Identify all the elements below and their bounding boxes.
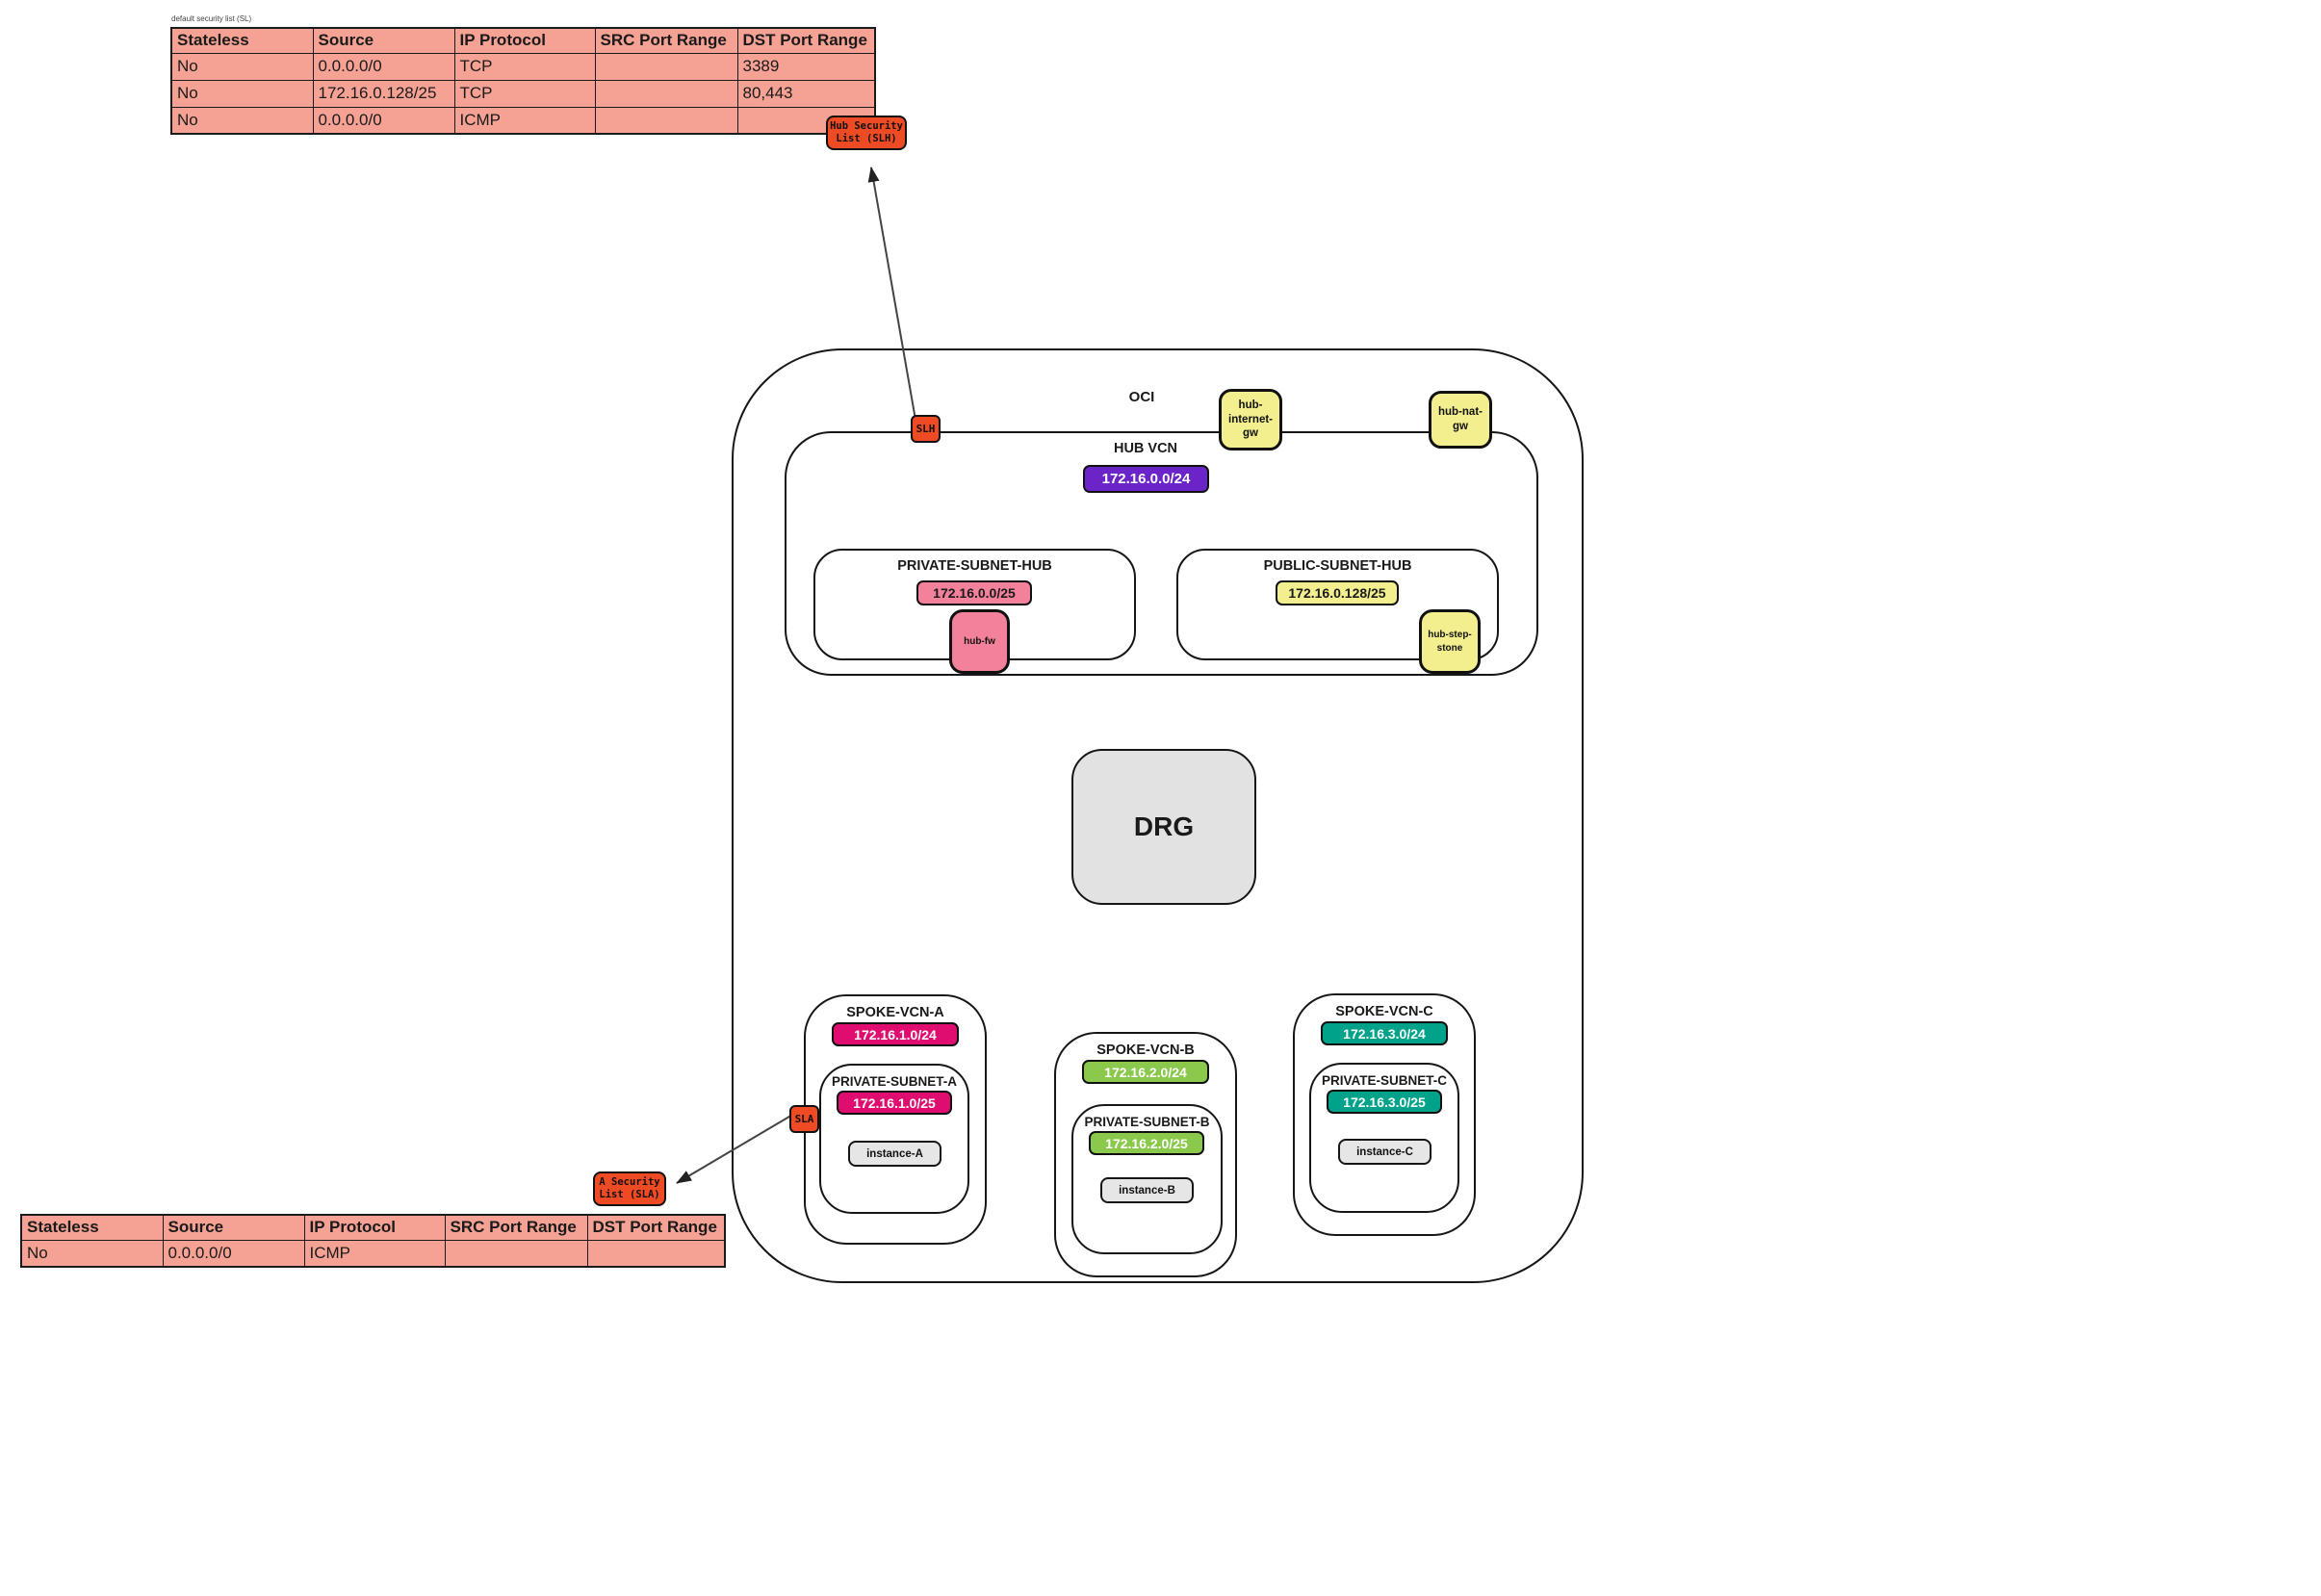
spoke-th-src-port: SRC Port Range <box>445 1215 587 1240</box>
instance-c-node: instance-C <box>1338 1139 1431 1165</box>
cell: 80,443 <box>737 80 875 107</box>
cell: 0.0.0.0/0 <box>163 1240 304 1267</box>
instance-label: instance-C <box>1356 1146 1413 1158</box>
hub-table-caption: default security list (SL) <box>171 14 251 23</box>
private-subnet-b-label: PRIVATE-SUBNET-B <box>1071 1115 1223 1129</box>
private-subnet-hub-cidr-badge: 172.16.0.0/25 <box>916 580 1032 605</box>
spoke-vcn-c-label: SPOKE-VCN-C <box>1293 1004 1476 1019</box>
spoke-vcn-b-cidr-badge: 172.16.2.0/24 <box>1082 1060 1209 1084</box>
hub-th-src-port: SRC Port Range <box>595 28 737 53</box>
public-subnet-hub-label: PUBLIC-SUBNET-HUB <box>1176 558 1499 574</box>
spoke-th-ip-protocol: IP Protocol <box>304 1215 445 1240</box>
cell <box>595 107 737 134</box>
spoke-vcn-c-cidr-badge: 172.16.3.0/24 <box>1321 1021 1448 1045</box>
diagram-canvas: default security list (SL) Stateless Sou… <box>0 0 2321 1596</box>
callout-line: List (SLH) <box>836 133 896 145</box>
node-label: stone <box>1437 642 1463 656</box>
cell: 172.16.0.128/25 <box>313 80 454 107</box>
private-subnet-hub-label: PRIVATE-SUBNET-HUB <box>813 558 1136 574</box>
hub-th-source: Source <box>313 28 454 53</box>
callout-line: A Security <box>599 1176 659 1189</box>
private-subnet-c-label: PRIVATE-SUBNET-C <box>1309 1073 1459 1088</box>
callout-line: List (SLA) <box>599 1189 659 1201</box>
spoke-vcn-a-label: SPOKE-VCN-A <box>804 1005 987 1020</box>
spoke-vcn-b-label: SPOKE-VCN-B <box>1054 1043 1237 1058</box>
hub-vcn-label: HUB VCN <box>1069 441 1223 456</box>
gw-line: gw <box>1243 426 1258 441</box>
hub-security-list-table: Stateless Source IP Protocol SRC Port Ra… <box>170 27 876 135</box>
sla-marker: SLA <box>789 1105 819 1133</box>
slh-marker: SLH <box>911 415 941 443</box>
spoke-th-stateless: Stateless <box>21 1215 163 1240</box>
private-subnet-a-label: PRIVATE-SUBNET-A <box>819 1074 969 1089</box>
cell: 0.0.0.0/0 <box>313 53 454 80</box>
node-label: hub-step- <box>1428 629 1472 642</box>
cell: ICMP <box>454 107 595 134</box>
private-subnet-c-cidr-badge: 172.16.3.0/25 <box>1327 1090 1442 1114</box>
callout-line: Hub Security <box>830 120 903 133</box>
cell: TCP <box>454 53 595 80</box>
cell: 0.0.0.0/0 <box>313 107 454 134</box>
hub-th-dst-port: DST Port Range <box>737 28 875 53</box>
public-subnet-hub-cidr-badge: 172.16.0.128/25 <box>1276 580 1399 605</box>
gw-line: gw <box>1453 420 1468 434</box>
private-subnet-b-cidr-badge: 172.16.2.0/25 <box>1089 1131 1204 1155</box>
cell <box>595 53 737 80</box>
spoke-security-list-table: Stateless Source IP Protocol SRC Port Ra… <box>20 1214 726 1268</box>
instance-label: instance-B <box>1119 1185 1175 1197</box>
hub-table-header-row: Stateless Source IP Protocol SRC Port Ra… <box>171 28 875 53</box>
cell: No <box>171 53 313 80</box>
drg-label: DRG <box>1134 811 1194 842</box>
hub-th-stateless: Stateless <box>171 28 313 53</box>
private-subnet-a-cidr-badge: 172.16.1.0/25 <box>837 1091 952 1115</box>
spoke-th-source: Source <box>163 1215 304 1240</box>
oci-label: OCI <box>1103 389 1180 405</box>
hub-security-list-callout: Hub Security List (SLH) <box>826 116 907 150</box>
table-row: No 0.0.0.0/0 TCP 3389 <box>171 53 875 80</box>
hub-internet-gateway: hub- internet- gw <box>1219 389 1282 450</box>
cell: No <box>171 107 313 134</box>
instance-b-node: instance-B <box>1100 1177 1194 1203</box>
cell: No <box>21 1240 163 1267</box>
hub-nat-gateway: hub-nat- gw <box>1429 391 1492 449</box>
instance-label: instance-A <box>866 1148 923 1160</box>
table-row: No 172.16.0.128/25 TCP 80,443 <box>171 80 875 107</box>
cell: TCP <box>454 80 595 107</box>
cell <box>587 1240 725 1267</box>
instance-a-node: instance-A <box>848 1141 941 1167</box>
table-row: No 0.0.0.0/0 ICMP <box>21 1240 725 1267</box>
cell <box>445 1240 587 1267</box>
hub-step-stone-node: hub-step- stone <box>1419 609 1481 674</box>
spoke-th-dst-port: DST Port Range <box>587 1215 725 1240</box>
hub-vcn-cidr-badge: 172.16.0.0/24 <box>1083 465 1209 493</box>
spoke-vcn-a-cidr-badge: 172.16.1.0/24 <box>832 1022 959 1046</box>
spoke-table-header-row: Stateless Source IP Protocol SRC Port Ra… <box>21 1215 725 1240</box>
cell: 3389 <box>737 53 875 80</box>
node-label: hub-fw <box>964 635 995 649</box>
gw-line: internet- <box>1228 413 1273 427</box>
hub-fw-node: hub-fw <box>949 609 1010 674</box>
cell: ICMP <box>304 1240 445 1267</box>
cell: No <box>171 80 313 107</box>
table-row: No 0.0.0.0/0 ICMP <box>171 107 875 134</box>
drg-node: DRG <box>1071 749 1256 905</box>
a-security-list-callout: A Security List (SLA) <box>593 1171 666 1206</box>
gw-line: hub-nat- <box>1438 405 1483 420</box>
gw-line: hub- <box>1239 399 1263 413</box>
hub-th-ip-protocol: IP Protocol <box>454 28 595 53</box>
cell <box>595 80 737 107</box>
